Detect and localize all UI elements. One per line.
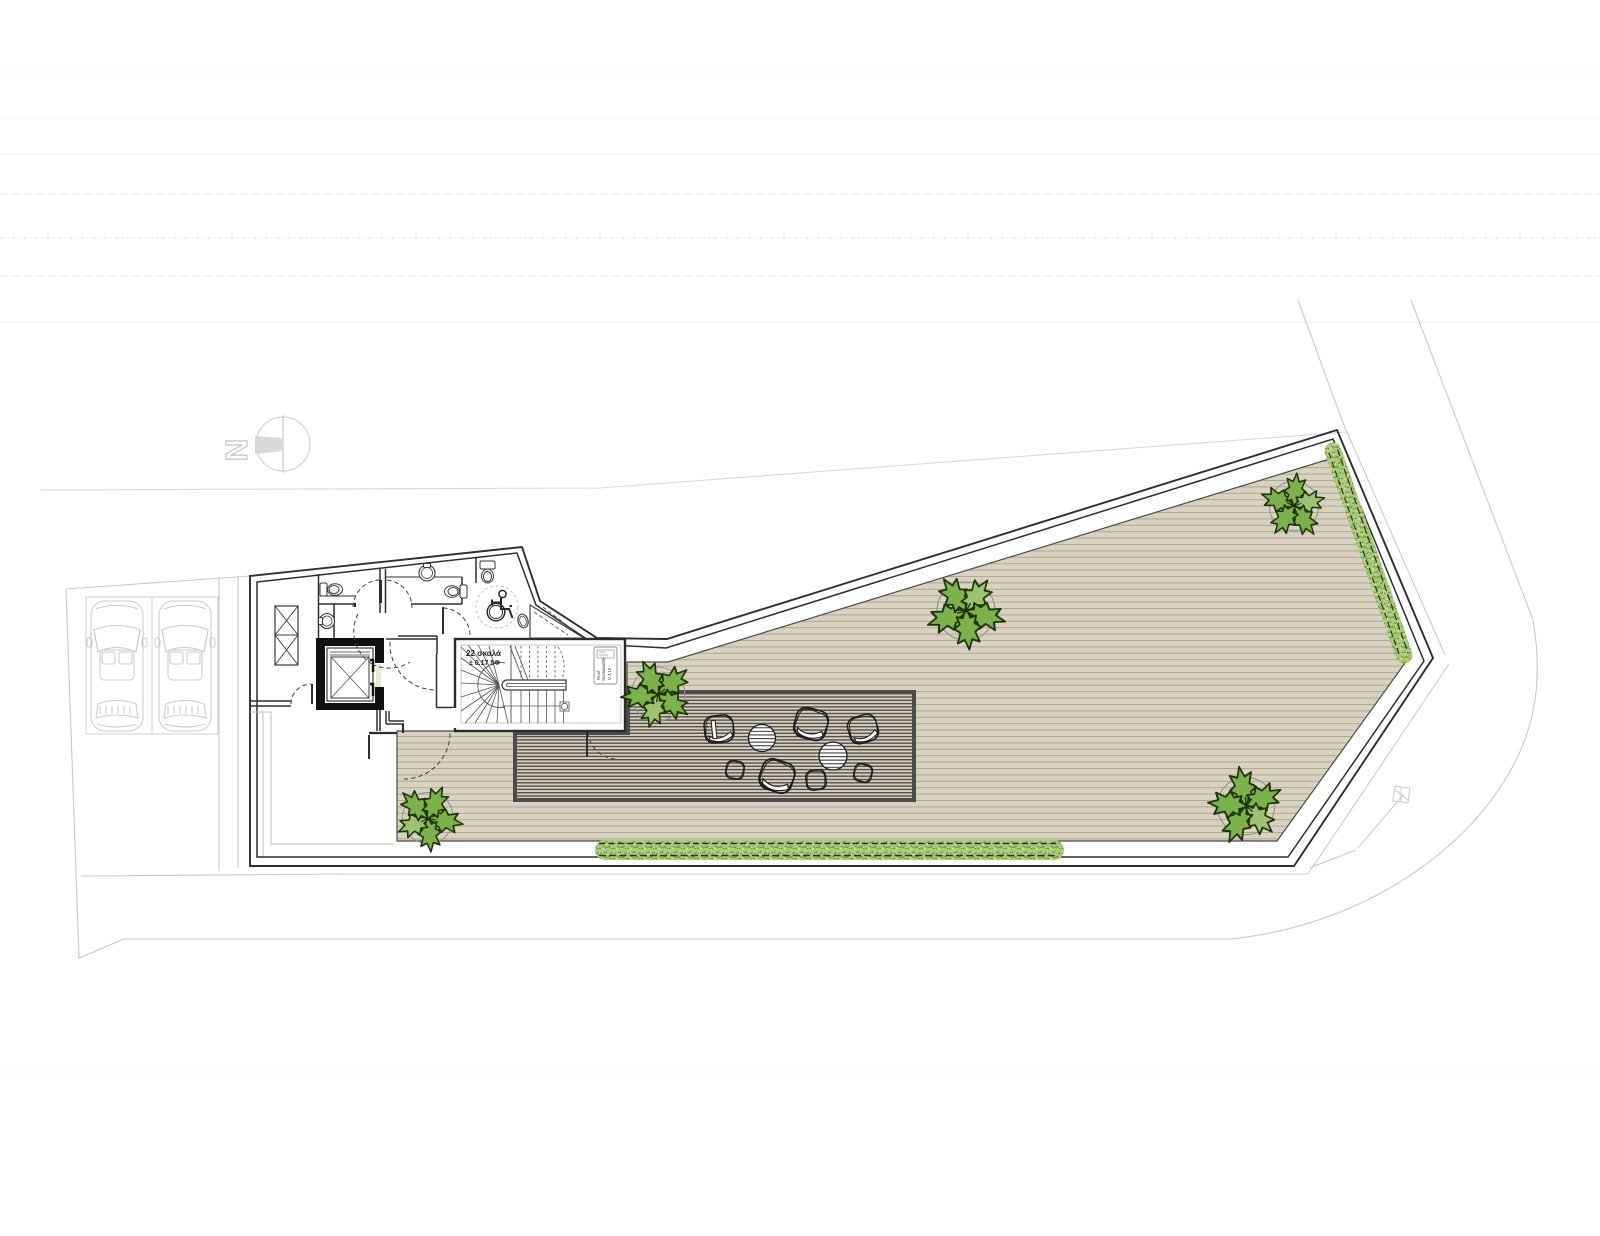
svg-text:± 0.17 5Φ: ± 0.17 5Φ [469,660,500,667]
svg-text:Sustainable: Sustainable [601,657,606,681]
svg-text:N: N [219,439,254,461]
svg-text:Roof: Roof [596,670,601,680]
svg-text:22 σκαλά: 22 σκαλά [466,649,501,658]
svg-text:V.T.10: V.T.10 [607,667,612,680]
